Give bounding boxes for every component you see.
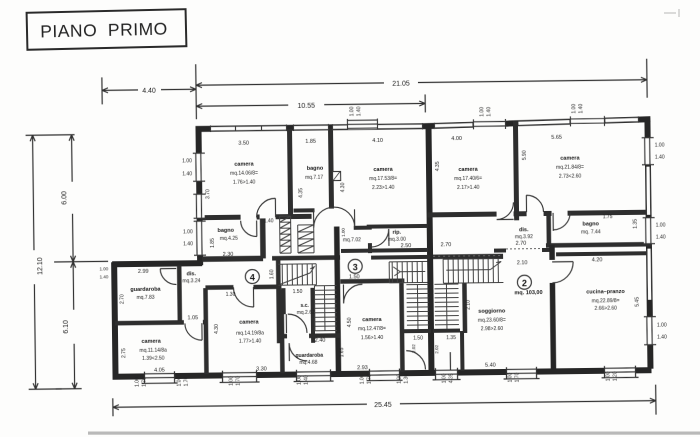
svg-text:1.30: 1.30 [226, 292, 236, 298]
svg-text:1.00: 1.00 [182, 158, 192, 164]
svg-text:1.70: 1.70 [184, 376, 190, 386]
svg-text:1.00: 1.00 [99, 266, 108, 271]
svg-text:1.00: 1.00 [183, 229, 193, 235]
svg-text:1.39<2.50: 1.39<2.50 [142, 356, 165, 362]
svg-text:1.00: 1.00 [349, 106, 355, 116]
svg-text:camera: camera [141, 339, 161, 345]
svg-text:2.93: 2.93 [357, 365, 368, 371]
svg-text:mq.7.83: mq.7.83 [136, 295, 154, 301]
svg-text:mq.23.60/8=: mq.23.60/8= [478, 317, 506, 323]
svg-text:10.55: 10.55 [297, 103, 315, 110]
svg-text:1.50: 1.50 [349, 274, 360, 280]
svg-text:guardaroba: guardaroba [295, 353, 323, 359]
svg-text:camera: camera [234, 162, 254, 168]
svg-text:2.73<2.60: 2.73<2.60 [559, 174, 582, 180]
svg-text:6.10: 6.10 [63, 320, 70, 334]
svg-text:mq.4.25: mq.4.25 [220, 236, 238, 242]
svg-text:1.00: 1.00 [397, 374, 403, 384]
svg-text:4: 4 [250, 273, 255, 283]
svg-text:2.66>2.60: 2.66>2.60 [595, 306, 618, 312]
svg-text:1.05: 1.05 [187, 315, 198, 321]
svg-text:1.35: 1.35 [446, 335, 456, 341]
svg-text:1.70: 1.70 [515, 372, 521, 382]
svg-text:1.40: 1.40 [578, 104, 584, 114]
svg-text:1.40: 1.40 [304, 375, 310, 385]
svg-text:mq.22.89/8=: mq.22.89/8= [592, 298, 620, 304]
svg-text:1.00: 1.00 [135, 377, 141, 387]
svg-text:camera: camera [373, 167, 393, 173]
svg-text:PIANO PRIMO: PIANO PRIMO [40, 19, 168, 42]
svg-text:2: 2 [522, 278, 527, 288]
svg-text:2.98>2.60: 2.98>2.60 [481, 326, 504, 332]
svg-text:mq.3.24: mq.3.24 [182, 278, 200, 284]
svg-text:3.30: 3.30 [256, 366, 267, 372]
svg-text:2.17>1.40: 2.17>1.40 [457, 185, 480, 191]
svg-text:4.35: 4.35 [449, 373, 455, 383]
svg-text:1.40: 1.40 [655, 155, 665, 161]
svg-text:2.02: 2.02 [434, 344, 439, 353]
svg-text:2.70: 2.70 [516, 241, 527, 247]
svg-text:mq.3.92: mq.3.92 [515, 234, 533, 240]
svg-text:1.77>1.40: 1.77>1.40 [239, 338, 262, 344]
svg-text:2.23>1.40: 2.23>1.40 [372, 185, 395, 191]
svg-text:bagno: bagno [307, 166, 324, 172]
svg-text:camera: camera [458, 167, 478, 173]
svg-text:mq.14.19/8a: mq.14.19/8a [236, 330, 264, 336]
svg-text:1.00: 1.00 [605, 371, 611, 381]
svg-text:1.20: 1.20 [612, 371, 618, 381]
svg-text:4.00: 4.00 [451, 136, 462, 142]
svg-text:21.05: 21.05 [392, 81, 410, 88]
svg-text:4.50: 4.50 [347, 317, 353, 327]
svg-text:camera: camera [362, 317, 382, 323]
svg-text:1.00: 1.00 [657, 323, 667, 329]
svg-text:camera: camera [560, 156, 580, 162]
svg-text:1.65: 1.65 [339, 347, 345, 357]
svg-text:bagno: bagno [582, 221, 599, 227]
svg-text:6.00: 6.00 [61, 191, 68, 205]
svg-text:mq.2.62: mq.2.62 [297, 310, 315, 316]
svg-text:1.50: 1.50 [413, 335, 423, 341]
svg-text:2.02: 2.02 [411, 344, 416, 353]
svg-text:1.75: 1.75 [603, 214, 613, 220]
svg-text:mq. 103,00: mq. 103,00 [514, 290, 542, 296]
svg-text:bagno: bagno [217, 228, 234, 234]
svg-text:1.00: 1.00 [360, 374, 366, 384]
svg-text:mq.17.53/8=: mq.17.53/8= [369, 176, 397, 182]
svg-text:dis.: dis. [187, 271, 197, 277]
svg-text:mq.14.06/8=: mq.14.06/8= [230, 170, 258, 176]
svg-text:2.30: 2.30 [223, 252, 234, 258]
svg-text:2.99: 2.99 [138, 269, 149, 275]
svg-text:1.70: 1.70 [142, 377, 148, 387]
svg-text:mq.7.02: mq.7.02 [343, 237, 361, 243]
svg-text:2.70: 2.70 [120, 294, 126, 304]
svg-text:mq.12.47/8=: mq.12.47/8= [358, 326, 386, 332]
svg-text:5.40: 5.40 [485, 363, 496, 369]
svg-text:1.00: 1.00 [656, 223, 666, 229]
svg-text:25.45: 25.45 [374, 402, 392, 409]
svg-text:mq.3.00: mq.3.00 [388, 237, 406, 243]
svg-text:1.70: 1.70 [367, 374, 373, 384]
svg-text:2.70: 2.70 [441, 242, 452, 248]
svg-text:1.00: 1.00 [229, 376, 235, 386]
svg-text:4.05: 4.05 [154, 368, 165, 374]
svg-text:1.00: 1.00 [297, 375, 303, 385]
svg-text:5.45: 5.45 [635, 297, 641, 307]
svg-text:mq.7.17: mq.7.17 [305, 175, 323, 181]
svg-text:4.20: 4.20 [592, 257, 603, 263]
svg-text:mq.17.40/6=: mq.17.40/6= [454, 176, 482, 182]
svg-text:12.10: 12.10 [37, 257, 44, 275]
svg-text:2.10: 2.10 [466, 300, 472, 310]
svg-text:1.00: 1.00 [177, 376, 183, 386]
svg-text:4.30: 4.30 [340, 182, 346, 192]
svg-text:1.50: 1.50 [293, 289, 303, 295]
svg-text:mq.21.84/8=: mq.21.84/8= [556, 165, 584, 171]
svg-text:1.40: 1.40 [183, 241, 193, 247]
svg-text:1.35: 1.35 [633, 219, 639, 229]
svg-text:mq. 7.44: mq. 7.44 [581, 229, 601, 235]
svg-text:1.60: 1.60 [269, 269, 275, 279]
svg-text:1.56>1.40: 1.56>1.40 [361, 335, 384, 341]
svg-text:2.75: 2.75 [121, 348, 127, 358]
svg-text:dis.: dis. [519, 227, 529, 233]
svg-text:4.10: 4.10 [372, 138, 383, 144]
svg-text:guardaroba: guardaroba [130, 287, 161, 293]
svg-text:1.85: 1.85 [210, 238, 216, 248]
svg-text:s.c.: s.c. [300, 303, 309, 309]
svg-text:soggiorno: soggiorno [478, 308, 506, 314]
svg-text:1.00: 1.00 [341, 228, 346, 237]
svg-text:1.40: 1.40 [656, 235, 666, 241]
svg-text:3: 3 [353, 262, 358, 272]
svg-text:1.00: 1.00 [442, 373, 448, 383]
svg-text:4.35: 4.35 [298, 188, 304, 198]
svg-text:1.00: 1.00 [508, 372, 514, 382]
svg-text:rip.: rip. [392, 230, 401, 236]
svg-text:1.00: 1.00 [655, 143, 665, 149]
svg-text:1.76>1.40: 1.76>1.40 [233, 180, 256, 186]
svg-text:5.90: 5.90 [522, 150, 528, 160]
svg-text:1.40: 1.40 [100, 274, 109, 279]
svg-text:cucina–pranzo: cucina–pranzo [586, 289, 625, 295]
svg-text:4.35: 4.35 [435, 161, 441, 171]
svg-text:2.40: 2.40 [315, 338, 326, 344]
svg-text:2.50: 2.50 [401, 243, 412, 249]
svg-text:mq.4.68: mq.4.68 [299, 360, 317, 366]
svg-text:mq.11.14/8a: mq.11.14/8a [139, 348, 167, 354]
svg-text:1.00: 1.00 [571, 104, 577, 114]
svg-text:1.85: 1.85 [305, 139, 316, 145]
svg-text:1.40: 1.40 [486, 107, 492, 117]
svg-text:camera: camera [239, 319, 259, 325]
svg-text:3.70: 3.70 [205, 189, 211, 199]
svg-text:1.40: 1.40 [657, 334, 667, 340]
svg-text:4.40: 4.40 [142, 88, 156, 95]
svg-text:5.65: 5.65 [551, 135, 562, 141]
svg-text:1.70: 1.70 [236, 376, 242, 386]
svg-text:1.30: 1.30 [404, 374, 410, 384]
svg-text:1.40: 1.40 [182, 171, 192, 177]
svg-text:3.50: 3.50 [238, 141, 249, 147]
svg-text:4.30: 4.30 [214, 324, 220, 334]
svg-text:2.10: 2.10 [517, 260, 528, 266]
svg-text:1.40: 1.40 [356, 106, 362, 116]
svg-text:1.40: 1.40 [264, 218, 274, 224]
svg-text:1.00: 1.00 [479, 107, 485, 117]
